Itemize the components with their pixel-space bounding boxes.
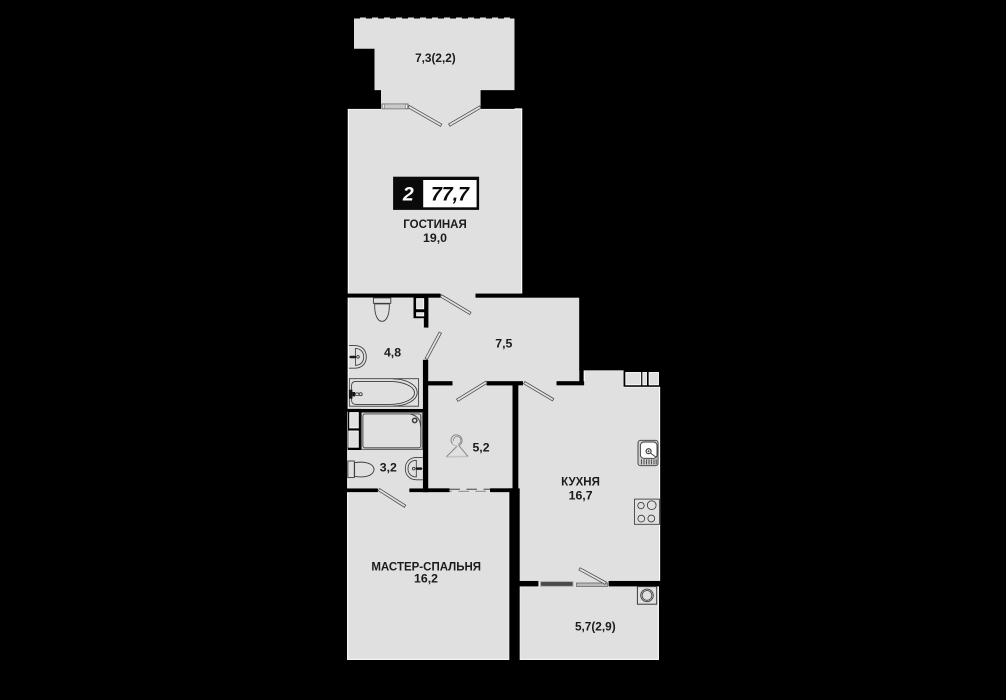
svg-text:7,5: 7,5 xyxy=(495,337,512,351)
svg-text:19,0: 19,0 xyxy=(423,231,447,245)
svg-text:4,8: 4,8 xyxy=(384,345,401,359)
svg-text:16,7: 16,7 xyxy=(569,489,593,503)
svg-text:КУХНЯ: КУХНЯ xyxy=(561,477,600,489)
svg-text:16,2: 16,2 xyxy=(414,572,438,586)
svg-text:ГОСТИНАЯ: ГОСТИНАЯ xyxy=(403,219,467,231)
svg-text:7,3(2,2): 7,3(2,2) xyxy=(415,51,456,65)
svg-text:77,7: 77,7 xyxy=(431,184,470,206)
svg-text:2: 2 xyxy=(402,183,414,205)
svg-text:3,2: 3,2 xyxy=(380,461,397,475)
svg-text:5,7(2,9): 5,7(2,9) xyxy=(575,620,616,634)
svg-text:5,2: 5,2 xyxy=(472,441,489,455)
